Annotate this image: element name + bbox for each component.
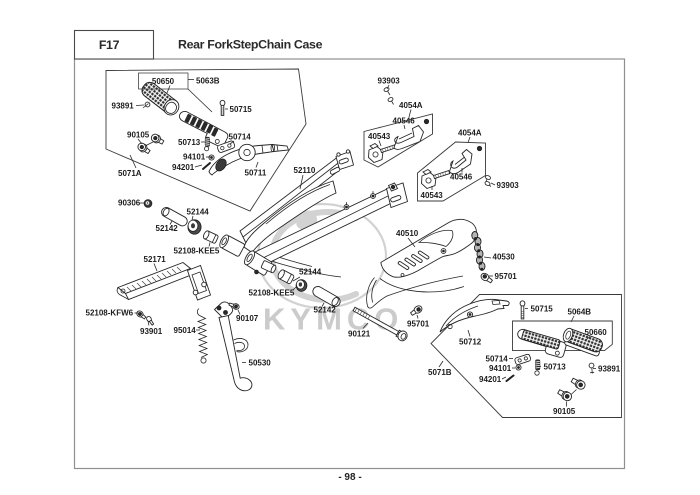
svg-text:93891: 93891	[598, 365, 621, 374]
svg-text:95014: 95014	[174, 326, 197, 335]
svg-text:40546: 40546	[393, 117, 416, 126]
svg-text:52171: 52171	[144, 255, 167, 264]
svg-text:50660: 50660	[585, 328, 608, 337]
svg-text:93891: 93891	[112, 102, 135, 111]
svg-text:95701: 95701	[495, 272, 518, 281]
svg-text:4054A: 4054A	[399, 101, 423, 110]
svg-text:52144: 52144	[187, 208, 210, 217]
svg-text:90105: 90105	[127, 131, 150, 140]
svg-text:50715: 50715	[531, 305, 554, 314]
svg-text:F17: F17	[99, 38, 120, 52]
svg-text:40530: 40530	[493, 253, 516, 262]
svg-text:52142: 52142	[156, 224, 179, 233]
svg-text:50711: 50711	[245, 169, 267, 178]
svg-text:50530: 50530	[249, 359, 272, 368]
svg-text:50713: 50713	[178, 138, 201, 147]
svg-text:90121: 90121	[348, 330, 371, 339]
svg-text:5071A: 5071A	[118, 169, 142, 178]
svg-text:93901: 93901	[140, 327, 163, 336]
svg-text:40510: 40510	[396, 229, 419, 238]
svg-text:50650: 50650	[152, 77, 175, 86]
svg-text:50715: 50715	[230, 105, 253, 114]
svg-text:5064B: 5064B	[568, 308, 592, 317]
svg-text:50714: 50714	[229, 133, 252, 142]
svg-text:93903: 93903	[497, 181, 520, 190]
svg-text:94201: 94201	[172, 163, 195, 172]
svg-text:94101: 94101	[183, 153, 206, 162]
svg-text:95701: 95701	[407, 320, 430, 329]
svg-text:52110: 52110	[294, 166, 316, 175]
svg-text:93903: 93903	[378, 77, 401, 86]
svg-text:52108-KEE5: 52108-KEE5	[249, 289, 295, 298]
svg-text:90306: 90306	[118, 199, 141, 208]
svg-text:94101: 94101	[489, 364, 512, 373]
svg-text:50714: 50714	[486, 355, 509, 364]
svg-text:90107: 90107	[236, 314, 259, 323]
svg-text:90105: 90105	[553, 407, 576, 416]
svg-text:50713: 50713	[544, 363, 567, 372]
svg-text:50712: 50712	[459, 338, 482, 347]
svg-text:52144: 52144	[299, 268, 322, 277]
svg-text:- 98 -: - 98 -	[338, 472, 361, 483]
svg-text:5063B: 5063B	[196, 77, 220, 86]
svg-text:52108-KFW6: 52108-KFW6	[86, 309, 134, 318]
svg-text:40543: 40543	[368, 132, 391, 141]
svg-text:4054A: 4054A	[458, 129, 482, 138]
svg-text:52142: 52142	[314, 306, 337, 315]
svg-text:Rear ForkStepChain Case: Rear ForkStepChain Case	[178, 38, 323, 52]
svg-text:40543: 40543	[421, 191, 444, 200]
svg-text:5071B: 5071B	[428, 368, 452, 377]
svg-text:40546: 40546	[450, 173, 473, 182]
svg-text:52108-KEE5: 52108-KEE5	[174, 247, 220, 256]
svg-text:94201: 94201	[479, 375, 502, 384]
